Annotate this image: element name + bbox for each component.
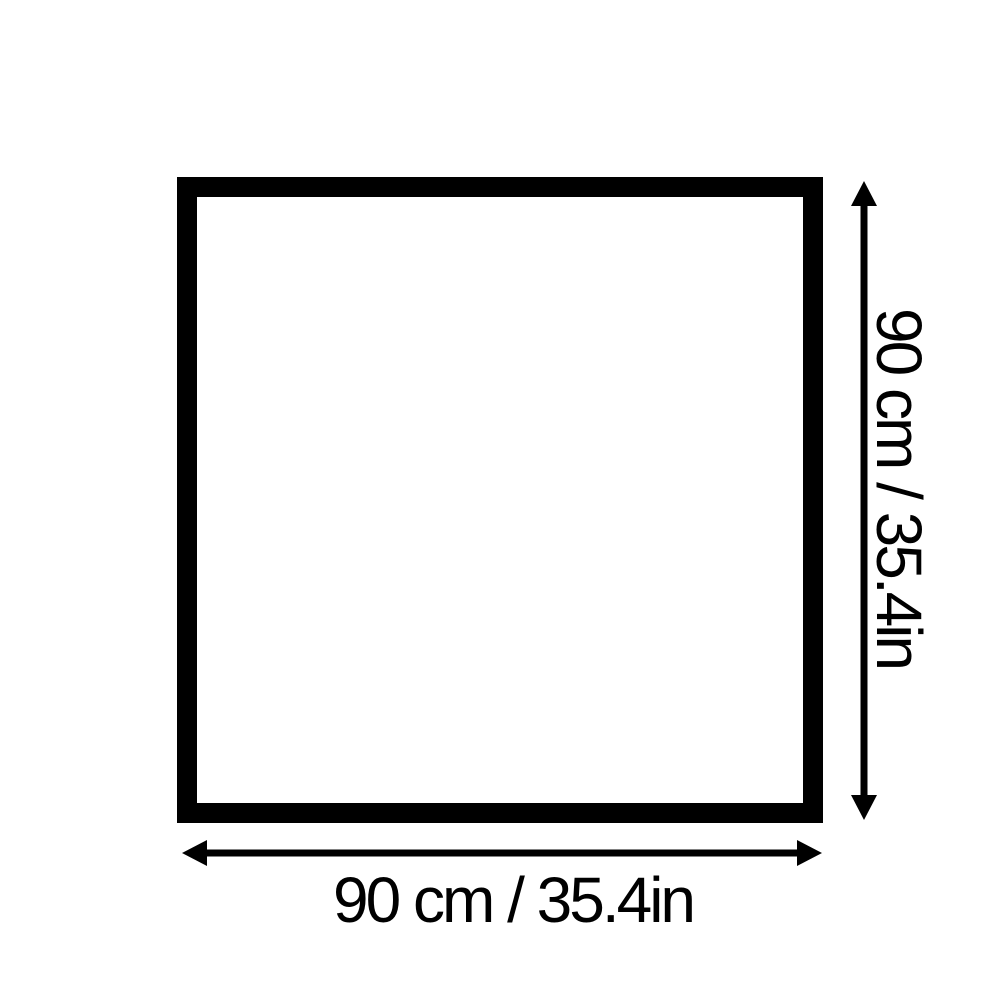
dimension-diagram: 90 cm / 35.4in 90 cm / 35.4in	[0, 0, 1000, 1000]
product-outline-square	[177, 177, 823, 823]
height-dimension-label: 90 cm / 35.4in	[867, 308, 931, 668]
arrowhead-left-icon	[182, 840, 207, 866]
width-dimension-label: 90 cm / 35.4in	[333, 868, 693, 932]
arrowhead-up-icon	[851, 181, 877, 206]
arrowhead-down-icon	[851, 795, 877, 820]
width-dimension-arrow	[182, 840, 822, 866]
arrowhead-right-icon	[797, 840, 822, 866]
